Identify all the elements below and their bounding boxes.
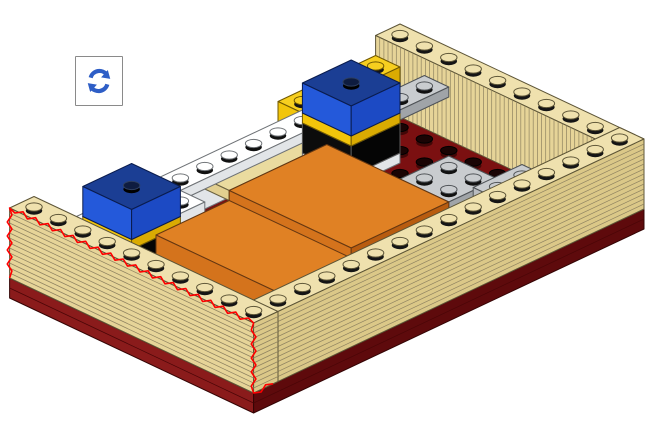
- rotate-icon: [79, 61, 119, 101]
- build-view: [0, 0, 656, 429]
- rotate-button[interactable]: [75, 56, 123, 106]
